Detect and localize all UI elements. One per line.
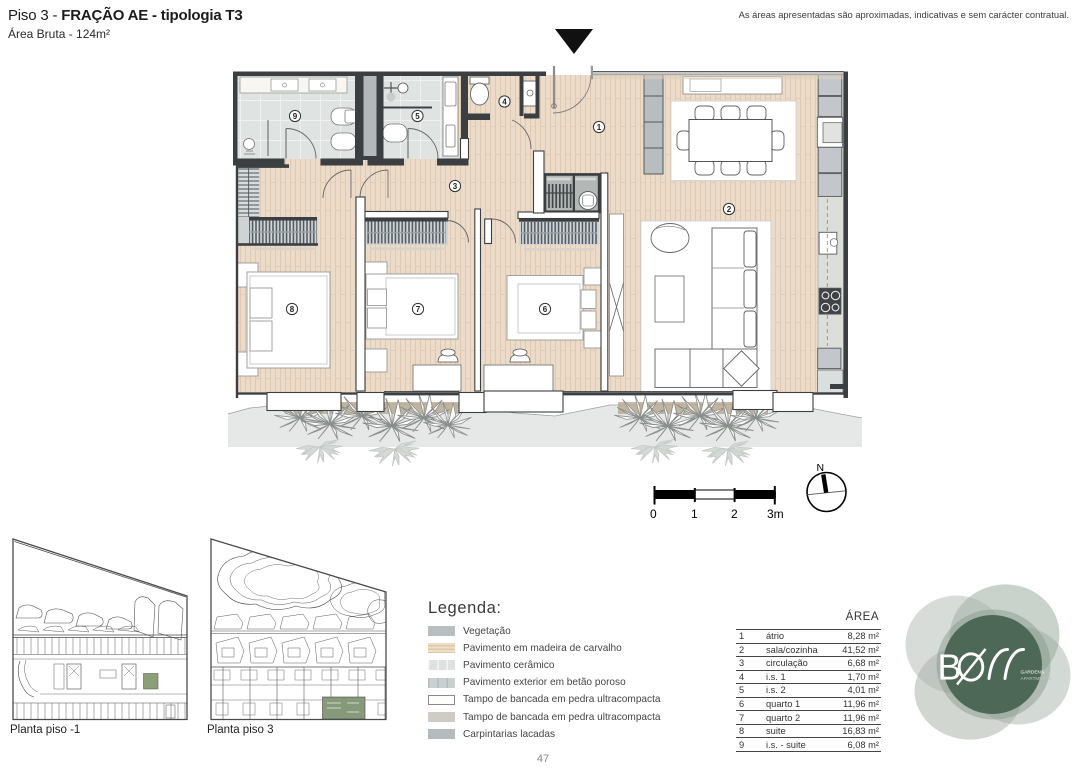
svg-text:APARTMENTS: APARTMENTS [1021, 676, 1052, 681]
svg-text:N: N [817, 462, 825, 474]
svg-text:2: 2 [727, 205, 732, 214]
svg-text:6: 6 [543, 305, 548, 314]
svg-text:4: 4 [502, 98, 507, 107]
svg-text:1: 1 [597, 123, 602, 132]
svg-text:7: 7 [416, 305, 421, 314]
svg-text:5: 5 [415, 112, 420, 121]
svg-text:9: 9 [293, 112, 298, 121]
svg-text:GARDENS: GARDENS [1021, 670, 1045, 676]
svg-text:8: 8 [290, 305, 295, 314]
svg-text:3: 3 [453, 182, 458, 191]
svg-text:2: 2 [731, 507, 738, 521]
svg-text:3m: 3m [767, 507, 784, 521]
svg-text:0: 0 [650, 507, 657, 521]
svg-text:1: 1 [691, 507, 698, 521]
